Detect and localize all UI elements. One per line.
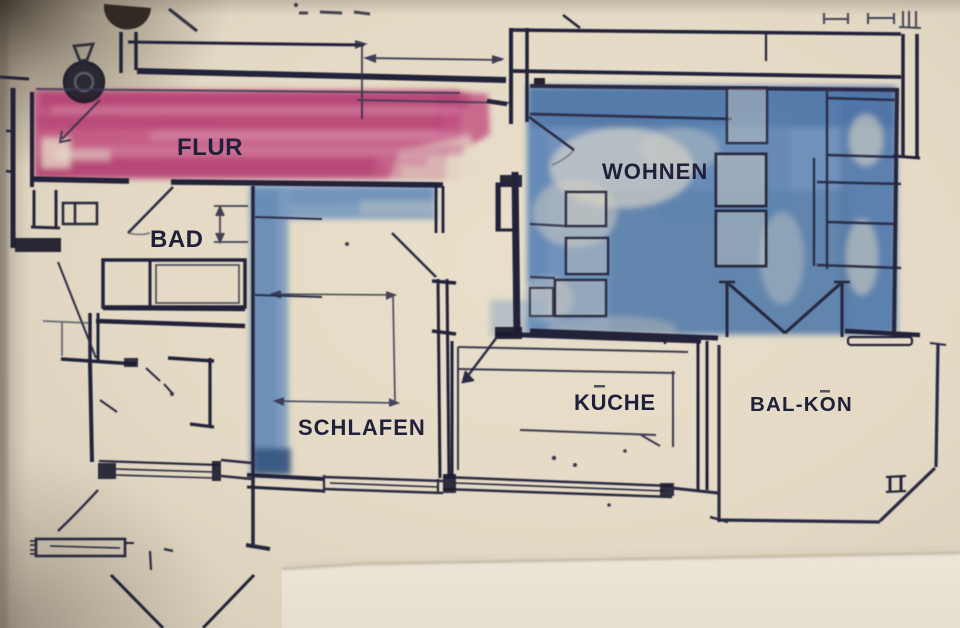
svg-text:SCHLAFEN: SCHLAFEN	[298, 415, 426, 440]
svg-text:KUCHE: KUCHE	[574, 390, 656, 415]
svg-text:FLUR: FLUR	[177, 134, 243, 161]
svg-text:BAL-KON: BAL-KON	[750, 393, 853, 416]
svg-text:BAD: BAD	[150, 226, 204, 253]
svg-text:WOHNEN: WOHNEN	[602, 159, 708, 184]
